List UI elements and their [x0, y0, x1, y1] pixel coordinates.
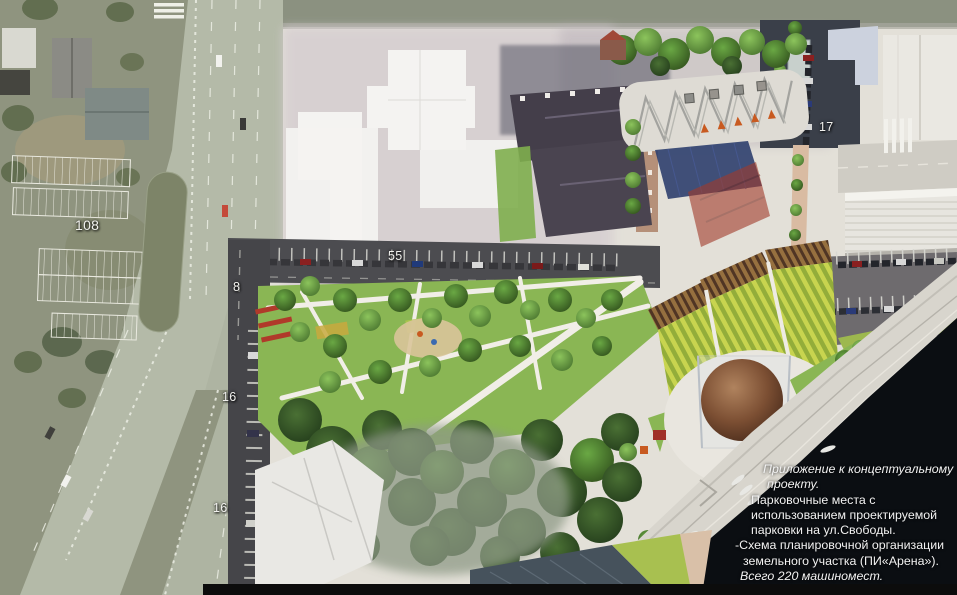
annotation-line-1: Приложение к концептуальному — [763, 462, 957, 477]
annotation-line-3: Парковочные места с — [751, 493, 957, 508]
parking-count-16-lower: 16 — [213, 501, 228, 515]
kiosk-red-roof — [653, 430, 666, 440]
parking-count-16-upper: 16 — [222, 390, 237, 404]
annotation-line-6: -Схема планировочной организации — [735, 538, 957, 553]
bottom-border-bar — [203, 584, 957, 595]
annotation-line-2: проекту. — [767, 477, 957, 492]
annotation-line-7: земельного участка (ПИ«Арена»). — [743, 554, 957, 569]
site-plan-screenshot: 108 55 8 16 16 17 Приложение к концептуа… — [0, 0, 957, 595]
crosswalk — [154, 3, 184, 19]
annotation-line-4: использованием проектируемой — [751, 508, 957, 523]
annotation-line-8: Всего 220 машиномест. — [740, 569, 957, 584]
warehouse-building — [845, 188, 957, 257]
parking-count-17: 17 — [819, 120, 834, 134]
annotation-block: Приложение к концептуальному проекту. Па… — [733, 462, 957, 584]
annotation-line-5: парковки на ул.Свободы. — [751, 523, 957, 538]
parking-count-55: 55 — [388, 249, 403, 263]
parking-count-108: 108 — [75, 217, 99, 233]
parking-count-8: 8 — [233, 280, 240, 294]
